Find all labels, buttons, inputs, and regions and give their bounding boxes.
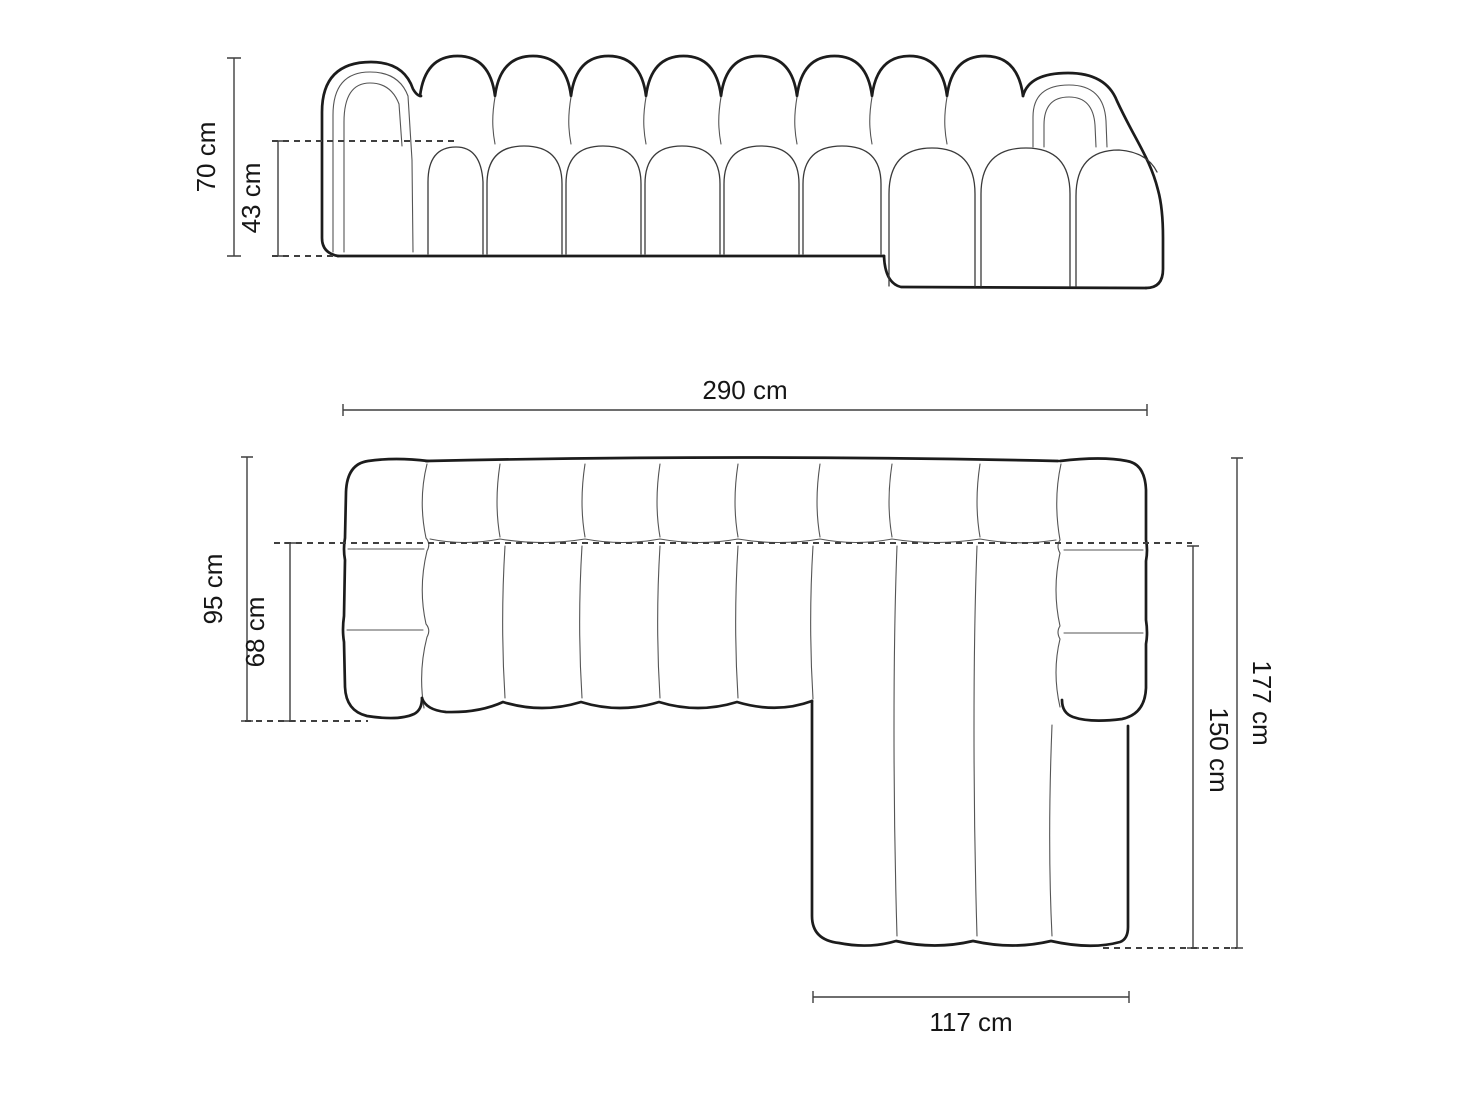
plan-seat-front-scallop — [422, 698, 812, 712]
plan-total-depth-label: 177 cm — [1247, 660, 1277, 745]
plan-chaise-width-dim-line — [813, 991, 1129, 1003]
plan-total-depth-dim-line — [1231, 458, 1243, 948]
front-seat-height-label: 43 cm — [236, 163, 266, 234]
plan-side-depth-label: 95 cm — [198, 554, 228, 625]
plan-back-top-edge — [426, 458, 1058, 462]
front-left-armrest-seam — [333, 72, 413, 252]
front-back-cushions-outline — [420, 56, 1023, 96]
plan-dimensions: 290 cm 95 cm 68 cm 177 cm 150 cm 117 cm — [198, 375, 1277, 1037]
front-back-cushion-seams — [493, 97, 947, 144]
front-right-armrest-outline — [1023, 73, 1163, 288]
plan-seat-channel-separators — [503, 546, 813, 699]
front-seat-cushions — [428, 146, 881, 254]
front-right-armrest-inner-seam — [1044, 97, 1096, 147]
plan-chaise-depth-label: 150 cm — [1204, 707, 1234, 792]
plan-total-width-dim-line — [343, 404, 1147, 416]
front-seat-height-dim-line — [272, 141, 284, 256]
plan-chaise-width-label: 117 cm — [929, 1007, 1012, 1037]
plan-right-armrest-dividers — [1064, 550, 1143, 633]
front-elevation-view: 70 cm 43 cm — [191, 56, 1163, 288]
diagram-canvas: 70 cm 43 cm — [0, 0, 1461, 1096]
plan-chaise-channel-separators — [894, 546, 1052, 936]
front-total-height-label: 70 cm — [191, 122, 221, 193]
plan-seat-depth-dim-line — [284, 543, 296, 721]
plan-right-armrest-inner-edge — [1056, 464, 1061, 707]
front-chaise-baseline — [884, 256, 1146, 288]
front-sofa-outline — [322, 56, 1163, 288]
plan-total-width-label: 290 cm — [702, 375, 787, 405]
top-plan-view: 290 cm 95 cm 68 cm 177 cm 150 cm 117 cm — [198, 375, 1277, 1037]
plan-left-armrest-inner-edge — [422, 464, 429, 708]
plan-chaise-depth-dim-line — [1187, 546, 1199, 948]
sofa-dimension-diagram: 70 cm 43 cm — [0, 0, 1461, 1096]
plan-chaise-outline — [812, 701, 1128, 946]
plan-sofa-outline — [343, 458, 1147, 946]
plan-back-bottom-scallop — [430, 539, 1056, 543]
front-chaise-cushions — [889, 148, 1157, 286]
plan-seat-depth-label: 68 cm — [240, 597, 270, 668]
plan-left-armrest-outline — [343, 459, 428, 718]
plan-back-cushion-separators — [497, 464, 980, 537]
plan-right-armrest-outline — [1060, 459, 1147, 721]
plan-left-armrest-dividers — [347, 549, 424, 630]
front-left-armrest-inner-seam — [344, 83, 402, 252]
plan-side-depth-dim-line — [241, 457, 253, 721]
